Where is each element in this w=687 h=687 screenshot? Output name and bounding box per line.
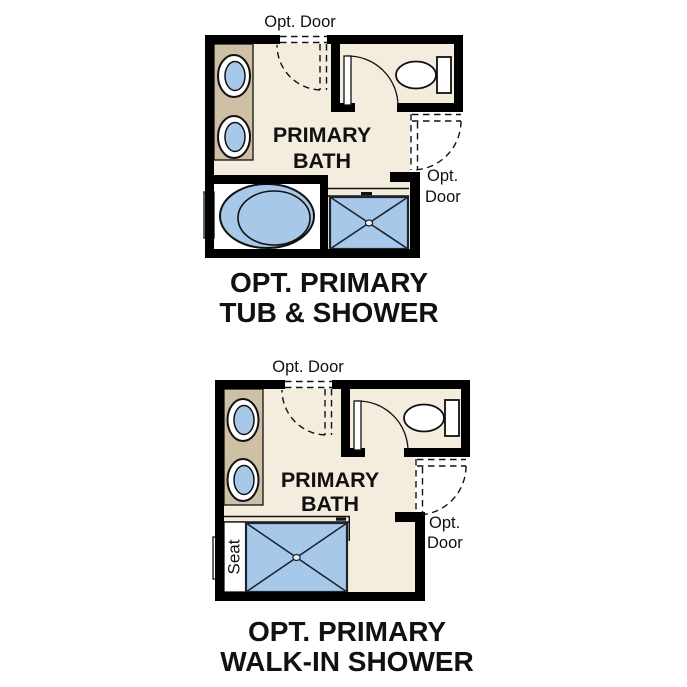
room-label-line2: BATH — [301, 492, 359, 516]
side-door-label-line2: Door — [425, 188, 461, 206]
seat-label: Seat — [224, 539, 243, 574]
shower-pan — [246, 523, 347, 592]
room-label-line2: BATH — [293, 149, 351, 173]
shower-pan — [330, 197, 408, 249]
side-door-label-line1: Opt. — [429, 514, 460, 532]
plan-title-line1: OPT. PRIMARY — [230, 267, 428, 298]
floorplan-tub-shower: Opt. Door PRIMARY BATH Opt. Door OPT. PR… — [204, 13, 463, 328]
side-door-label-line1: Opt. — [427, 167, 458, 185]
floorplan-canvas: Opt. Door PRIMARY BATH Opt. Door OPT. PR… — [0, 0, 687, 687]
vanity-counter — [224, 389, 263, 505]
bathtub — [220, 184, 314, 248]
floorplan-walk-in-shower: Seat — [213, 358, 474, 677]
sink — [228, 459, 259, 501]
drain — [293, 555, 300, 561]
top-door-label: Opt. Door — [264, 13, 336, 31]
drain — [365, 220, 372, 226]
plan-title-line1: OPT. PRIMARY — [248, 616, 446, 647]
plan-title-line2: TUB & SHOWER — [219, 297, 438, 328]
sink — [228, 399, 259, 441]
top-door-label: Opt. Door — [272, 358, 344, 376]
floorplan-page: Opt. Door PRIMARY BATH Opt. Door OPT. PR… — [0, 0, 687, 687]
plan-title-line2: WALK-IN SHOWER — [220, 646, 474, 677]
vanity-counter — [214, 44, 253, 160]
room-label-line1: PRIMARY — [273, 123, 371, 147]
side-door-label-line2: Door — [427, 534, 463, 552]
room-label-line1: PRIMARY — [281, 468, 379, 492]
sink — [218, 55, 250, 97]
optional-door-side — [416, 459, 466, 515]
optional-door-side — [411, 114, 461, 170]
seat: Seat — [224, 522, 246, 592]
sink — [218, 116, 250, 158]
